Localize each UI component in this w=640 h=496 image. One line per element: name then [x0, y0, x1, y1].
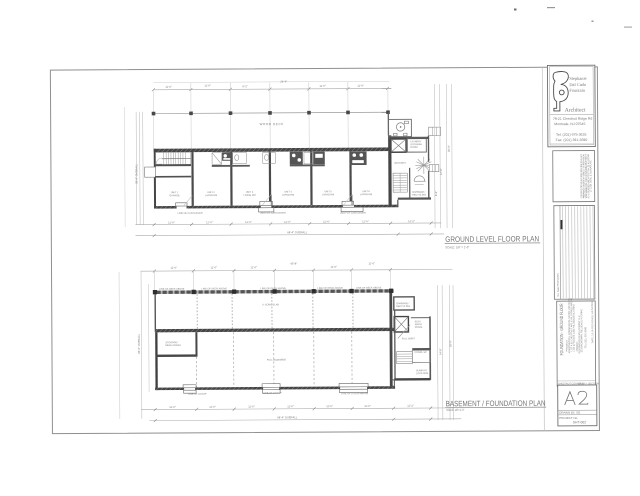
svg-text:FULL BSMT: FULL BSMT: [402, 337, 416, 340]
svg-text:11'-0": 11'-0": [206, 220, 213, 224]
svg-text:LINE OF STOOP ABOVE: LINE OF STOOP ABOVE: [341, 392, 368, 395]
svg-text:28'-0" OVERALL: 28'-0" OVERALL: [134, 163, 138, 184]
svg-text:11'-0": 11'-0": [245, 220, 252, 224]
svg-text:11'-0": 11'-0": [364, 404, 371, 408]
svg-text:17 1234 SEAL & SIGNATURE: 17 1234 SEAL & SIGNATURE: [589, 160, 592, 192]
svg-text:DATE: 10-14-2013 SCALE: AS N: DATE: 10-14-2013 SCALE: AS NOTED: [591, 301, 594, 343]
svg-text:TEL (201) 391-0000: TEL (201) 391-0000: [584, 326, 587, 348]
svg-text:Architect: Architect: [565, 107, 586, 113]
svg-text:11'-2": 11'-2": [408, 219, 415, 223]
svg-text:79-21 Chestnut Ridge Rd: 79-21 Chestnut Ridge Rd: [553, 117, 593, 121]
svg-text:LIVING RM: LIVING RM: [205, 194, 217, 197]
svg-text:LINE OF DECK ABOVE: LINE OF DECK ABOVE: [202, 287, 228, 290]
svg-text:ROOM: ROOM: [415, 326, 422, 329]
svg-text:Fountain: Fountain: [569, 88, 585, 93]
svg-text:8'-4": 8'-4": [434, 191, 438, 196]
svg-text:Tel: (201) 675-3635: Tel: (201) 675-3635: [556, 133, 586, 137]
svg-text:RECYCLING: RECYCLING: [412, 194, 426, 197]
svg-text:68'-4" OVERALL: 68'-4" OVERALL: [277, 415, 298, 419]
svg-text:DRAWN BY: SD: DRAWN BY: SD: [559, 411, 580, 415]
svg-text:373 BROADWAY, HILLSDALE NJ 076: 373 BROADWAY, HILLSDALE NJ 07642: [580, 309, 583, 353]
svg-text:11'-0": 11'-0": [209, 405, 216, 409]
svg-text:11'-0": 11'-0": [362, 219, 369, 223]
svg-text:SHT-002: SHT-002: [573, 420, 587, 424]
svg-text:SCALE: 1/8" = 1'-0": SCALE: 1/8" = 1'-0": [445, 245, 469, 249]
svg-text:GARAGE: GARAGE: [169, 194, 180, 197]
svg-text:Dal Cado: Dal Cado: [569, 82, 587, 87]
svg-text:28'-0": 28'-0": [447, 145, 451, 152]
svg-text:2ND FLR CANTILEVER: 2ND FLR CANTILEVER: [260, 212, 286, 215]
svg-text:28'-0": 28'-0": [448, 340, 452, 347]
svg-text:9'-2": 9'-2": [242, 84, 247, 88]
svg-text:LIVING RM: LIVING RM: [243, 194, 255, 197]
svg-text:11'-0": 11'-0": [168, 220, 175, 224]
svg-text:Fax: (201) 391-3690: Fax: (201) 391-3690: [556, 138, 588, 142]
svg-text:LOCATION: LOCATION: [416, 372, 428, 375]
svg-text:LIVING RM: LIVING RM: [282, 194, 294, 197]
svg-text:11'-0": 11'-0": [210, 265, 217, 269]
svg-text:11'-0": 11'-0": [248, 405, 255, 409]
svg-text:LINE OF DECK ABOVE: LINE OF DECK ABOVE: [318, 287, 344, 290]
svg-text:RECYCLING: RECYCLING: [396, 305, 410, 308]
svg-text:11'-0": 11'-0": [204, 83, 211, 87]
svg-text:11'-0": 11'-0": [357, 84, 364, 88]
svg-text:11'-0": 11'-0": [326, 404, 333, 408]
svg-text:ROOM: ROOM: [410, 146, 417, 149]
svg-text:11'-0": 11'-0": [319, 84, 326, 88]
svg-text:68'-4" OVERALL: 68'-4" OVERALL: [287, 230, 308, 234]
svg-text:11'-0": 11'-0": [368, 261, 375, 265]
svg-text:LINE OF STOOP: LINE OF STOOP: [263, 392, 282, 395]
svg-text:11'-0": 11'-0": [330, 265, 337, 269]
svg-text:CRAWL SP: CRAWL SP: [414, 351, 427, 354]
svg-text:LOT 27 BLOCK 1203 HILLSDALE NJ: LOT 27 BLOCK 1203 HILLSDALE NJ 07642: [573, 304, 576, 352]
svg-text:11'-0": 11'-0": [284, 220, 291, 224]
svg-text:11'-0": 11'-0": [169, 405, 176, 409]
svg-text:LIVING RM: LIVING RM: [360, 193, 372, 196]
svg-text:GROUND LEVEL FLOOR PLAN: GROUND LEVEL FLOOR PLAN: [445, 234, 539, 244]
svg-text:11'-0": 11'-0": [165, 85, 172, 89]
svg-text:WOOD DECK: WOOD DECK: [260, 122, 284, 126]
svg-text:SCALE: 1/8"=1'-0": SCALE: 1/8"=1'-0": [446, 408, 464, 412]
svg-text:Montvale, NJ 07645: Montvale, NJ 07645: [554, 122, 585, 126]
svg-text:28'-0" OVERALL: 28'-0" OVERALL: [137, 333, 141, 354]
svg-text:11'-0": 11'-0": [323, 220, 330, 224]
svg-text:11'-0": 11'-0": [250, 265, 257, 269]
svg-text:Stephanie: Stephanie: [569, 76, 586, 81]
svg-text:No. Date REVISIONS: No. Date REVISIONS: [557, 273, 560, 297]
svg-text:11'-0": 11'-0": [287, 404, 294, 408]
svg-text:LINE OF CANTILEVER: LINE OF CANTILEVER: [178, 212, 203, 215]
svg-text:12'-6": 12'-6": [439, 168, 443, 175]
svg-text:WALKWAY: WALKWAY: [394, 162, 406, 165]
svg-text:LINE OF DECK ABOVE: LINE OF DECK ABOVE: [356, 286, 382, 289]
svg-text:24'-6": 24'-6": [280, 80, 287, 84]
svg-text:FULL BASEMENT: FULL BASEMENT: [267, 359, 287, 362]
svg-text:MECH ROOM: MECH ROOM: [165, 344, 180, 347]
svg-text:45'-8": 45'-8": [290, 261, 297, 265]
svg-text:14'-6": 14'-6": [438, 348, 442, 355]
svg-text:LINE OF STOOP: LINE OF STOOP: [188, 393, 207, 396]
svg-text:4" CONC SLAB: 4" CONC SLAB: [262, 303, 279, 306]
svg-text:LIVING RM: LIVING RM: [322, 193, 334, 196]
svg-text:FOUNDATION - GROUND FLOOR: FOUNDATION - GROUND FLOOR: [559, 303, 564, 356]
svg-text:11'-0": 11'-0": [170, 266, 177, 270]
svg-text:2ND FLR CANTILEVER: 2ND FLR CANTILEVER: [340, 212, 366, 215]
svg-text:LINE OF DECK ABOVE: LINE OF DECK ABOVE: [159, 288, 185, 291]
svg-text:11'-2": 11'-2": [407, 404, 414, 408]
